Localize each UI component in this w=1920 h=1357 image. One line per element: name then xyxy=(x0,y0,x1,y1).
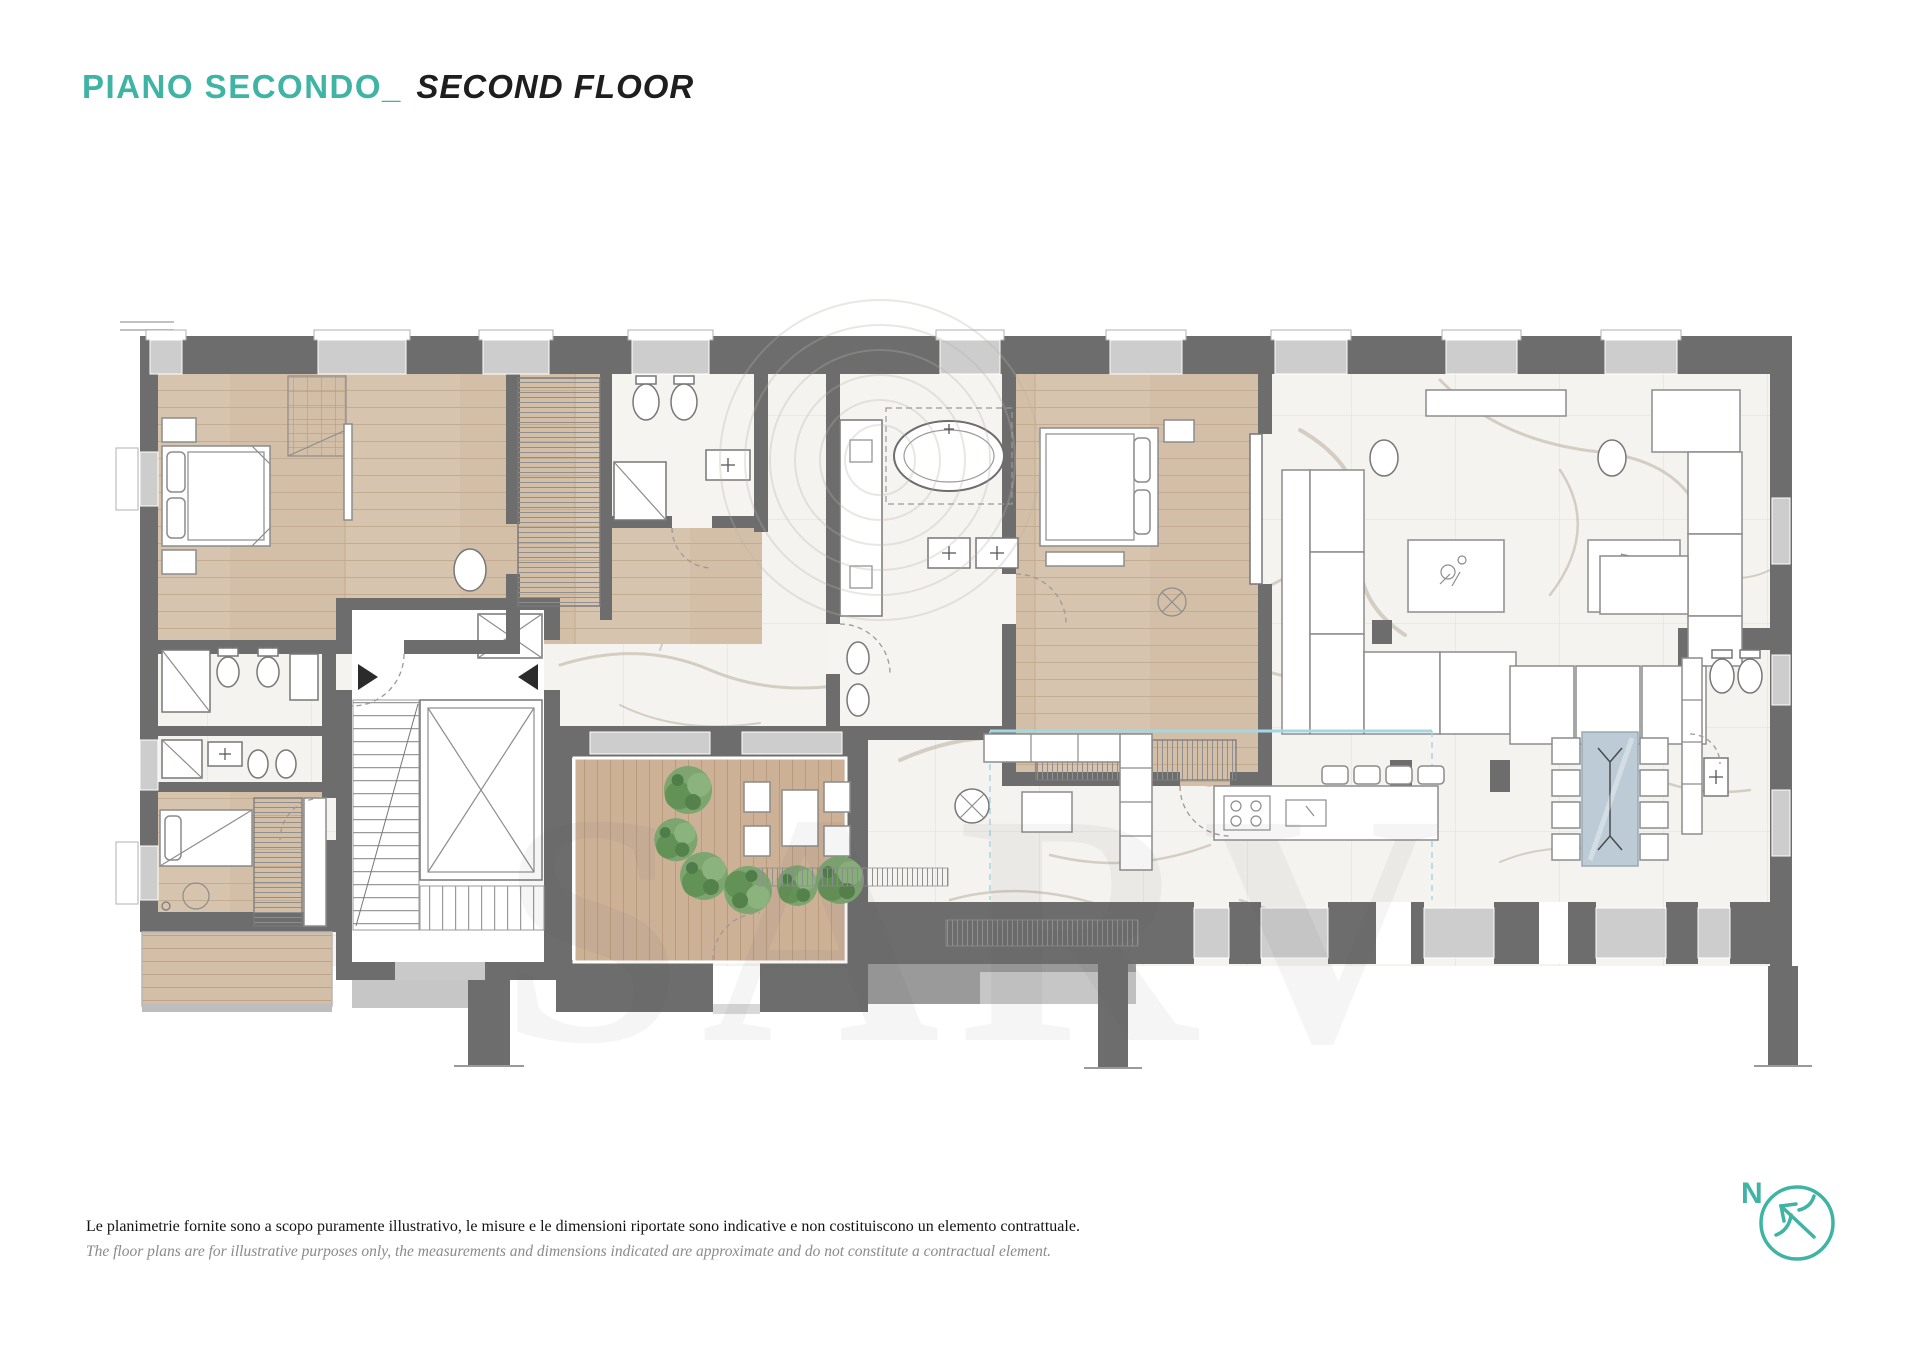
closet-stair xyxy=(288,376,346,456)
floor-outlet xyxy=(1372,620,1392,644)
bidet xyxy=(257,657,279,687)
title-separator: _ xyxy=(382,68,400,105)
page-title: PIANO SECONDO_SECOND FLOOR xyxy=(82,68,694,106)
north-arrow-icon xyxy=(1776,1196,1814,1237)
bottom-door xyxy=(1376,902,1411,964)
bottom-door-2 xyxy=(1539,902,1568,964)
disclaimer-english: The floor plans are for illustrative pur… xyxy=(86,1243,1386,1261)
nightstand xyxy=(162,550,196,574)
coffee-table-1 xyxy=(1408,540,1504,612)
dining-chair xyxy=(1552,738,1580,764)
disclaimer-italian: Le planimetrie fornite sono a scopo pura… xyxy=(86,1218,1386,1236)
balcony xyxy=(142,932,332,1012)
closet xyxy=(304,798,326,926)
counter xyxy=(984,734,1126,762)
sink xyxy=(290,654,318,700)
console xyxy=(1426,390,1566,416)
floor-plan: SARV xyxy=(0,0,1920,1357)
side-table xyxy=(1370,440,1398,476)
toilet xyxy=(248,750,268,778)
floor-outlet xyxy=(1490,760,1510,792)
dining-chair xyxy=(1640,738,1668,764)
title-italian: PIANO SECONDO xyxy=(82,68,382,105)
stool xyxy=(1322,766,1348,784)
toilet xyxy=(217,657,239,687)
nightstand xyxy=(162,418,196,442)
compass-north-label: N xyxy=(1741,1177,1763,1210)
balcony-deck xyxy=(142,932,332,1006)
armchair xyxy=(454,549,486,591)
wardrobe xyxy=(254,798,302,926)
stairwell xyxy=(336,598,560,1066)
bottom-windows xyxy=(1194,902,1730,964)
bidet xyxy=(276,750,296,778)
bidet xyxy=(671,384,697,420)
bidet xyxy=(1738,659,1762,693)
title-english: SECOND FLOOR xyxy=(416,68,694,105)
stool xyxy=(1354,766,1380,784)
tall-unit xyxy=(1682,658,1702,834)
disclaimer: Le planimetrie fornite sono a scopo pura… xyxy=(86,1218,1386,1268)
side-table xyxy=(1022,792,1072,832)
toilet xyxy=(633,384,659,420)
radiator xyxy=(758,868,948,886)
bidet xyxy=(847,684,869,716)
bed-bench xyxy=(1046,552,1124,566)
radiator xyxy=(946,920,1138,946)
toilet xyxy=(847,642,869,674)
dining-chair xyxy=(1552,834,1580,860)
dining-chair xyxy=(1552,770,1580,796)
pocket-door xyxy=(1250,434,1262,584)
stool xyxy=(1386,766,1412,784)
dining-chair xyxy=(1640,834,1668,860)
right-windows xyxy=(1772,498,1790,856)
dining-chair xyxy=(1552,802,1580,828)
nightstand xyxy=(1164,420,1194,442)
north-compass: N xyxy=(1733,1163,1848,1278)
side-table xyxy=(1598,440,1626,476)
dining-chair xyxy=(1640,770,1668,796)
dining-chair xyxy=(1640,802,1668,828)
toilet xyxy=(1710,659,1734,693)
stool xyxy=(1418,766,1444,784)
mirror-panel xyxy=(344,424,352,520)
wall-unit xyxy=(840,420,882,616)
